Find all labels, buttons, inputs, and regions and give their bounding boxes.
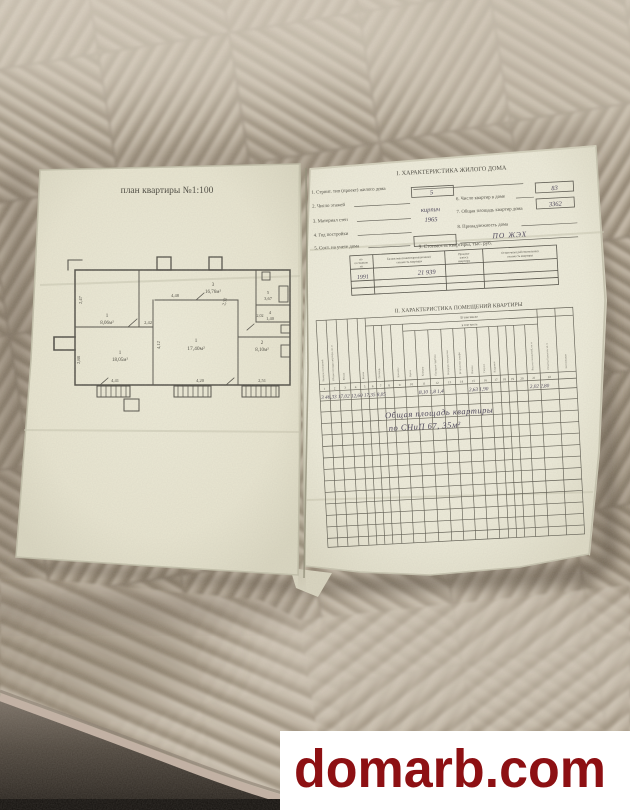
- svg-text:domarb.com: domarb.com: [294, 739, 606, 799]
